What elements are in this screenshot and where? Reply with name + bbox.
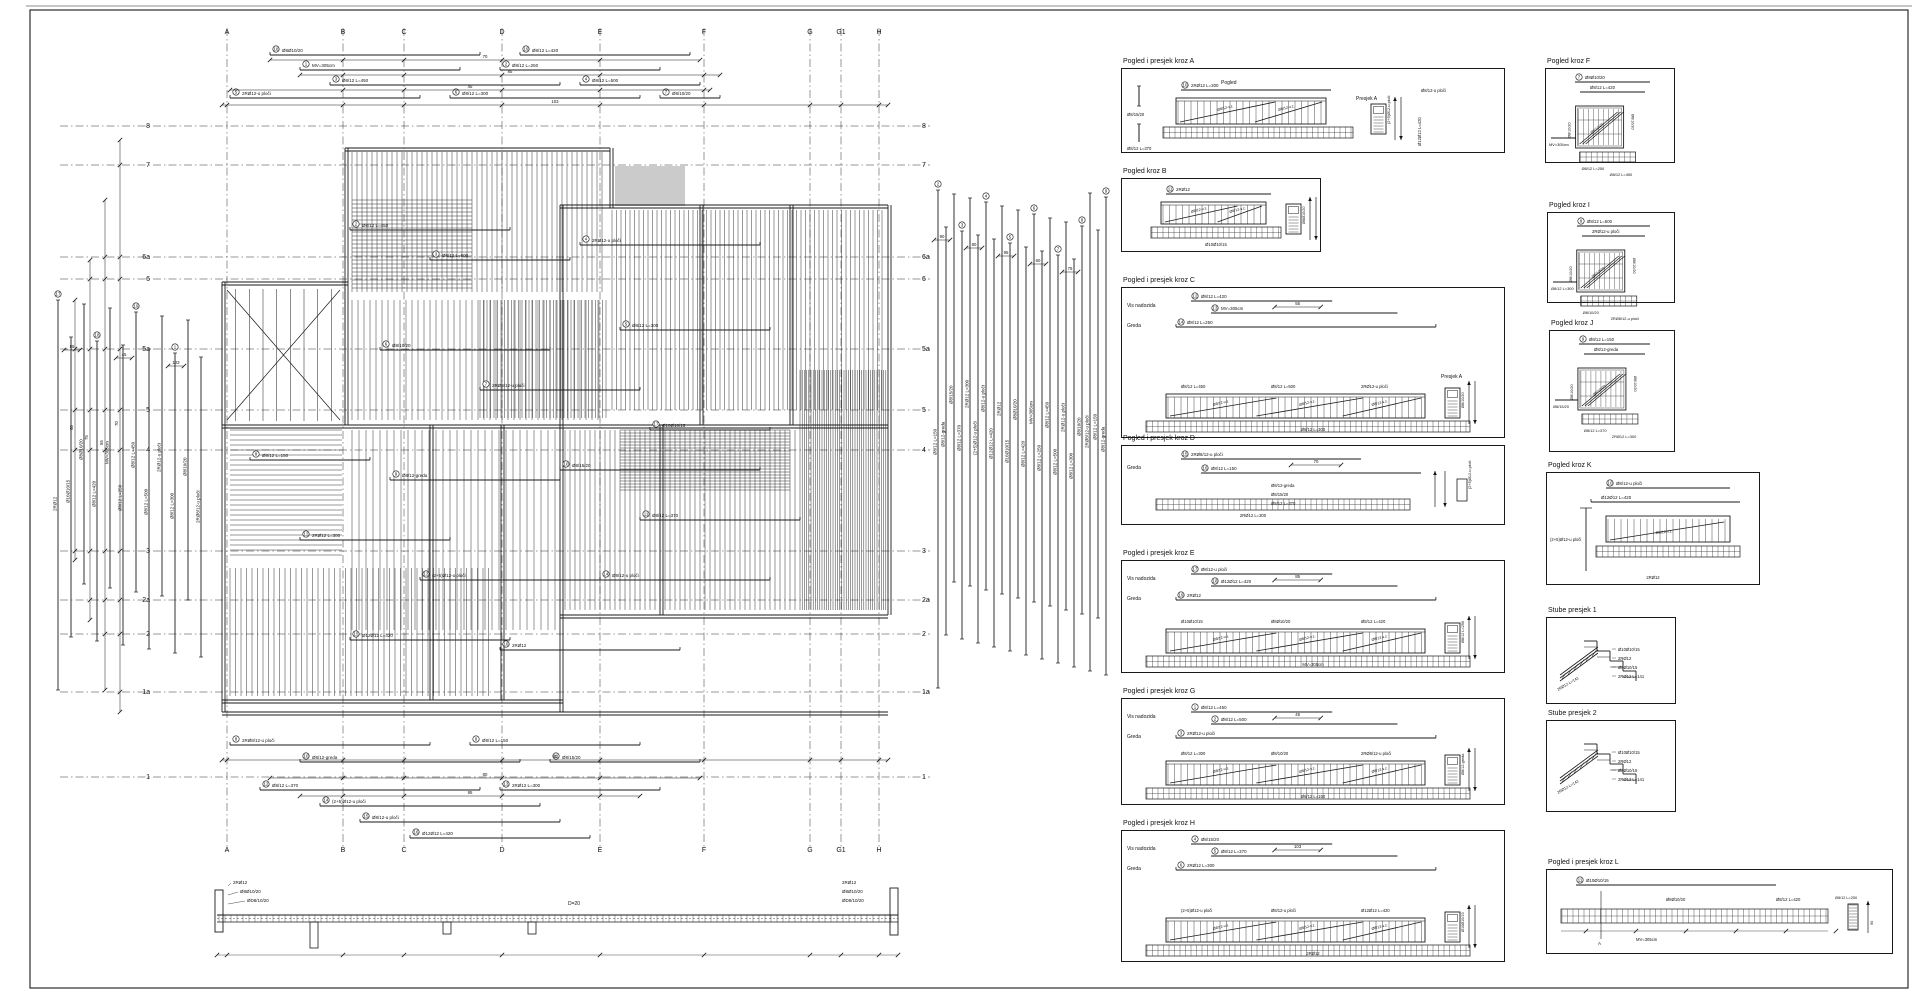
svg-text:Ø8/12 L=300: Ø8/12 L=300 bbox=[462, 91, 489, 96]
svg-text:Ø8/12 L=420: Ø8/12 L=420 bbox=[1021, 440, 1026, 467]
svg-text:10: 10 bbox=[304, 754, 309, 759]
svg-text:2RØ12: 2RØ12 bbox=[512, 643, 527, 648]
svg-text:5: 5 bbox=[146, 407, 150, 414]
svg-text:1a: 1a bbox=[922, 689, 930, 696]
svg-text:Ø8/10/20: Ø8/10/20 bbox=[672, 91, 691, 96]
detail-box-k[interactable]: Pogled kroz K bbox=[1546, 472, 1760, 585]
svg-text:6: 6 bbox=[146, 276, 150, 283]
dimension-chains: 70854510390809560755570 bbox=[69, 54, 890, 798]
svg-text:2: 2 bbox=[146, 631, 150, 638]
svg-text:Ø8/12 L=300: Ø8/12 L=300 bbox=[1069, 452, 1074, 479]
svg-text:Ø8/12 L=250: Ø8/12 L=250 bbox=[1582, 166, 1605, 171]
svg-text:2RØ12 L=300: 2RØ12 L=300 bbox=[512, 783, 541, 788]
svg-text:1: 1 bbox=[922, 774, 926, 781]
svg-text:Ø8/15/20: Ø8/15/20 bbox=[572, 463, 591, 468]
plan-grid: AABBCCDDEEFFGGG1G1HH88776a6a665a5a554433… bbox=[60, 28, 930, 854]
svg-text:2RØ8/12-u ploči: 2RØ8/12-u ploči bbox=[492, 383, 525, 388]
svg-text:6a: 6a bbox=[142, 254, 150, 261]
detail-box-stair-2-title: Stube presjek 2 bbox=[1548, 710, 1597, 717]
svg-text:2RØ12-u ploči: 2RØ12-u ploči bbox=[242, 91, 271, 96]
svg-text:2RØ8/12-u ploči: 2RØ8/12-u ploči bbox=[242, 738, 275, 743]
svg-text:Ø8/10/20: Ø8/10/20 bbox=[392, 343, 411, 348]
svg-text:Ø8/12-u ploči: Ø8/12-u ploči bbox=[981, 385, 986, 412]
svg-text:3: 3 bbox=[922, 548, 926, 555]
detail-box-h[interactable]: Pogled i presjek kroz H bbox=[1121, 830, 1505, 962]
svg-text:Ø8/12 L=150: Ø8/12 L=150 bbox=[482, 738, 509, 743]
svg-text:8: 8 bbox=[146, 123, 150, 130]
svg-text:G: G bbox=[807, 29, 812, 36]
svg-text:Ø10Ø10/15: Ø10Ø10/15 bbox=[1005, 439, 1010, 463]
svg-text:Ø8/12 L=450: Ø8/12 L=450 bbox=[131, 441, 136, 468]
detail-box-d[interactable]: Pogled i presjek kroz D bbox=[1121, 445, 1505, 525]
detail-box-stair-1-title: Stube presjek 1 bbox=[1548, 607, 1597, 614]
svg-text:16: 16 bbox=[414, 830, 419, 835]
svg-text:Ø8/10/20: Ø8/10/20 bbox=[183, 457, 188, 476]
svg-text:(2+5)Ø12-u ploči: (2+5)Ø12-u ploči bbox=[332, 799, 366, 804]
svg-text:B: B bbox=[341, 29, 346, 36]
svg-text:2RØ12 L=300: 2RØ12 L=300 bbox=[965, 379, 970, 408]
svg-text:95: 95 bbox=[468, 790, 473, 795]
svg-text:5: 5 bbox=[922, 407, 926, 414]
svg-text:6: 6 bbox=[922, 276, 926, 283]
svg-text:(2+5)Ø12-u ploči: (2+5)Ø12-u ploči bbox=[432, 573, 466, 578]
svg-text:19: 19 bbox=[524, 47, 529, 52]
detail-box-g-title: Pogled i presjek kroz G bbox=[1123, 688, 1195, 695]
detail-box-i-title: Pogled kroz I bbox=[1549, 202, 1590, 209]
svg-text:Ø8/12 L=450: Ø8/12 L=450 bbox=[1045, 401, 1050, 428]
svg-text:Ø12Ø12 L=420: Ø12Ø12 L=420 bbox=[989, 428, 994, 459]
svg-text:Ø8/12 L=420: Ø8/12 L=420 bbox=[92, 480, 97, 507]
svg-text:70: 70 bbox=[114, 421, 119, 426]
svg-text:D=20: D=20 bbox=[568, 901, 580, 907]
svg-text:Ø8/12 L=300: Ø8/12 L=300 bbox=[170, 492, 175, 519]
svg-text:85: 85 bbox=[70, 344, 75, 349]
svg-text:7: 7 bbox=[922, 162, 926, 169]
svg-text:8: 8 bbox=[922, 123, 926, 130]
svg-text:C: C bbox=[401, 847, 406, 854]
svg-text:ØD8/10/20: ØD8/10/20 bbox=[247, 898, 269, 903]
svg-text:Ø8/12 L=370: Ø8/12 L=370 bbox=[652, 513, 679, 518]
svg-text:60: 60 bbox=[1036, 258, 1041, 263]
svg-text:Ø8/12 L=150: Ø8/12 L=150 bbox=[1093, 413, 1098, 440]
svg-text:90: 90 bbox=[553, 754, 558, 759]
svg-text:2RØ8/12-u ploči: 2RØ8/12-u ploči bbox=[1085, 415, 1090, 448]
svg-text:80: 80 bbox=[483, 772, 488, 777]
svg-text:(2+5)Ø12-u ploči: (2+5)Ø12-u ploči bbox=[973, 421, 978, 455]
svg-text:Ø8/12 L=500: Ø8/12 L=500 bbox=[1053, 448, 1058, 475]
svg-text:B: B bbox=[341, 847, 346, 854]
detail-box-l-title: Pogled i presjek kroz L bbox=[1548, 859, 1619, 866]
svg-text:Ø8Ø10/20: Ø8Ø10/20 bbox=[79, 439, 84, 460]
detail-box-a-title: Pogled i presjek kroz A bbox=[1123, 58, 1194, 65]
detail-box-b[interactable]: Pogled kroz B bbox=[1121, 178, 1321, 252]
svg-text:17: 17 bbox=[654, 422, 659, 427]
svg-text:D: D bbox=[499, 29, 504, 36]
svg-text:4: 4 bbox=[146, 447, 150, 454]
svg-text:A: A bbox=[225, 847, 230, 854]
detail-box-h-title: Pogled i presjek kroz H bbox=[1123, 820, 1195, 827]
svg-text:6a: 6a bbox=[922, 254, 930, 261]
svg-text:Ø8/12 L=500: Ø8/12 L=500 bbox=[144, 488, 149, 515]
drawing-sheet: AABBCCDDEEFFGGG1G1HH88776a6a665a5a554433… bbox=[0, 0, 1920, 999]
svg-text:45: 45 bbox=[122, 352, 127, 357]
svg-text:Ø8/12 L=250: Ø8/12 L=250 bbox=[118, 484, 123, 511]
svg-text:95: 95 bbox=[1004, 250, 1009, 255]
svg-text:75: 75 bbox=[84, 435, 89, 440]
svg-text:2a: 2a bbox=[922, 597, 930, 604]
svg-text:MV=305cm: MV=305cm bbox=[105, 441, 110, 464]
detail-box-e-title: Pogled i presjek kroz E bbox=[1123, 550, 1195, 557]
svg-text:2RØ8/12-u ploči: 2RØ8/12-u ploči bbox=[196, 490, 201, 523]
svg-text:18: 18 bbox=[95, 333, 100, 338]
svg-text:12: 12 bbox=[304, 532, 309, 537]
svg-text:A: A bbox=[225, 29, 230, 36]
plan-walls bbox=[222, 148, 891, 715]
svg-text:13: 13 bbox=[504, 782, 509, 787]
svg-text:Ø8/12 L=500: Ø8/12 L=500 bbox=[442, 253, 469, 258]
svg-text:F: F bbox=[702, 29, 706, 36]
svg-text:3: 3 bbox=[146, 548, 150, 555]
svg-text:10: 10 bbox=[564, 462, 569, 467]
svg-text:2RØ8/12-u ploči: 2RØ8/12-u ploči bbox=[1611, 316, 1639, 321]
svg-text:Ø8/12 L=250: Ø8/12 L=250 bbox=[512, 63, 539, 68]
svg-text:75: 75 bbox=[1068, 266, 1073, 271]
svg-text:4: 4 bbox=[922, 447, 926, 454]
detail-box-f-title: Pogled kroz F bbox=[1547, 58, 1590, 65]
bottom-section: D=202RØ12Ø8Ø10/20ØD8/10/202RØ12Ø8Ø10/20Ø… bbox=[215, 880, 900, 957]
svg-text:C: C bbox=[401, 29, 406, 36]
svg-text:H: H bbox=[876, 29, 881, 36]
svg-text:90: 90 bbox=[940, 234, 945, 239]
svg-text:15: 15 bbox=[354, 632, 359, 637]
svg-text:Ø8/12 L=370: Ø8/12 L=370 bbox=[957, 424, 962, 451]
detail-box-stair-1[interactable]: Stube presjek 1 bbox=[1546, 617, 1676, 704]
svg-text:85: 85 bbox=[508, 69, 513, 74]
svg-text:17: 17 bbox=[56, 292, 61, 297]
svg-text:Ø10Ø10/15: Ø10Ø10/15 bbox=[66, 479, 71, 503]
detail-box-k-title: Pogled kroz K bbox=[1548, 462, 1592, 469]
svg-text:E: E bbox=[598, 29, 603, 36]
svg-text:2RØ12-u ploči: 2RØ12-u ploči bbox=[1061, 403, 1066, 432]
svg-text:H: H bbox=[876, 847, 881, 854]
svg-text:11: 11 bbox=[644, 512, 649, 517]
detail-box-j-title: Pogled kroz J bbox=[1551, 320, 1593, 327]
svg-text:2RØ12-u ploči: 2RØ12-u ploči bbox=[157, 443, 162, 472]
svg-text:Ø8/12-u ploči: Ø8/12-u ploči bbox=[372, 815, 399, 820]
svg-text:19: 19 bbox=[134, 304, 139, 309]
svg-text:103: 103 bbox=[172, 360, 180, 365]
svg-text:MV=305cm: MV=305cm bbox=[312, 63, 335, 68]
svg-text:F: F bbox=[702, 847, 706, 854]
svg-text:Ø8/12-greda: Ø8/12-greda bbox=[941, 421, 946, 447]
svg-text:103: 103 bbox=[551, 99, 559, 104]
svg-text:7: 7 bbox=[146, 162, 150, 169]
detail-box-d-title: Pogled i presjek kroz D bbox=[1123, 435, 1195, 442]
svg-text:1: 1 bbox=[146, 774, 150, 781]
svg-text:2: 2 bbox=[922, 631, 926, 638]
detail-box-f[interactable]: Pogled kroz F bbox=[1545, 68, 1675, 163]
detail-box-stair-2[interactable]: Stube presjek 2 bbox=[1546, 720, 1676, 812]
svg-text:Ø8/12-greda: Ø8/12-greda bbox=[1101, 426, 1106, 452]
svg-text:Ø8Ø10/20: Ø8Ø10/20 bbox=[842, 889, 863, 894]
svg-text:12: 12 bbox=[264, 782, 269, 787]
svg-text:Ø8Ø10/20: Ø8Ø10/20 bbox=[1013, 399, 1018, 420]
svg-text:Ø8/12 L=450: Ø8/12 L=450 bbox=[362, 223, 389, 228]
svg-text:Ø12Ø12 L=420: Ø12Ø12 L=420 bbox=[422, 831, 453, 836]
svg-text:2RØ12-u ploči: 2RØ12-u ploči bbox=[592, 238, 621, 243]
svg-text:2RØ12: 2RØ12 bbox=[233, 880, 248, 885]
svg-text:Ø8/12 L=300: Ø8/12 L=300 bbox=[632, 323, 659, 328]
svg-text:Ø8Ø10/20: Ø8Ø10/20 bbox=[240, 889, 261, 894]
svg-text:Ø8/12 L=450: Ø8/12 L=450 bbox=[342, 78, 369, 83]
svg-text:Ø8/10/20: Ø8/10/20 bbox=[1583, 310, 1600, 315]
svg-text:2RØ12: 2RØ12 bbox=[842, 880, 857, 885]
svg-text:G1: G1 bbox=[836, 847, 845, 854]
svg-text:14: 14 bbox=[324, 798, 329, 803]
svg-text:D: D bbox=[499, 847, 504, 854]
svg-text:15: 15 bbox=[364, 814, 369, 819]
svg-text:2RØ12 L=300: 2RØ12 L=300 bbox=[312, 533, 341, 538]
detail-box-i[interactable]: Pogled kroz I bbox=[1547, 212, 1675, 303]
svg-text:Ø8/15/20: Ø8/15/20 bbox=[949, 385, 954, 404]
svg-text:1a: 1a bbox=[142, 689, 150, 696]
detail-box-l[interactable]: Pogled i presjek kroz L bbox=[1546, 869, 1893, 954]
svg-text:Ø8/12 L=500: Ø8/12 L=500 bbox=[592, 78, 619, 83]
svg-text:16: 16 bbox=[504, 642, 509, 647]
svg-text:Ø8/12 L=370: Ø8/12 L=370 bbox=[272, 783, 299, 788]
svg-text:Ø10Ø10/15: Ø10Ø10/15 bbox=[662, 423, 686, 428]
svg-text:MV=305cm: MV=305cm bbox=[1029, 401, 1034, 424]
svg-text:80: 80 bbox=[972, 242, 977, 247]
detail-box-c[interactable]: Pogled i presjek kroz C bbox=[1121, 287, 1505, 438]
svg-text:14: 14 bbox=[604, 572, 609, 577]
svg-text:E: E bbox=[598, 847, 603, 854]
detail-box-g[interactable]: Pogled i presjek kroz G bbox=[1121, 698, 1505, 805]
svg-text:2RØ12: 2RØ12 bbox=[997, 401, 1002, 416]
plan-hatching bbox=[230, 152, 886, 696]
svg-text:70: 70 bbox=[483, 54, 488, 59]
svg-text:Ø8/12 L=150: Ø8/12 L=150 bbox=[933, 428, 938, 455]
svg-text:45: 45 bbox=[468, 84, 473, 89]
svg-text:55: 55 bbox=[99, 440, 104, 445]
svg-text:Ø8/15/20: Ø8/15/20 bbox=[562, 755, 581, 760]
detail-box-a[interactable]: Pogled i presjek kroz A bbox=[1121, 68, 1505, 153]
bar-schedule-right: Ø8/12 L=1502Ø8/12-gredaØ8/15/2090Ø8/12 L… bbox=[932, 181, 1109, 688]
svg-text:5a: 5a bbox=[922, 346, 930, 353]
svg-text:18: 18 bbox=[274, 47, 279, 52]
svg-text:Ø8/10/20: Ø8/10/20 bbox=[1077, 417, 1082, 436]
detail-box-e[interactable]: Pogled i presjek kroz E bbox=[1121, 560, 1505, 673]
svg-text:G: G bbox=[807, 847, 812, 854]
svg-text:Ø8/12 L=250: Ø8/12 L=250 bbox=[1037, 444, 1042, 471]
svg-text:Ø12Ø12 L=420: Ø12Ø12 L=420 bbox=[362, 633, 393, 638]
svg-text:Ø8/12 L=450: Ø8/12 L=450 bbox=[1610, 172, 1633, 177]
svg-text:2RØ12: 2RØ12 bbox=[53, 496, 58, 511]
svg-text:Ø8/12-greda: Ø8/12-greda bbox=[312, 755, 338, 760]
svg-text:Ø8/12 L=420: Ø8/12 L=420 bbox=[532, 48, 559, 53]
svg-text:G1: G1 bbox=[836, 29, 845, 36]
detail-box-b-title: Pogled kroz B bbox=[1123, 168, 1167, 175]
svg-text:13: 13 bbox=[424, 572, 429, 577]
svg-text:ØD8/10/20: ØD8/10/20 bbox=[842, 898, 864, 903]
svg-text:Ø8/12-greda: Ø8/12-greda bbox=[402, 473, 428, 478]
svg-text:Ø8Ø10/20: Ø8Ø10/20 bbox=[282, 48, 303, 53]
detail-box-j[interactable]: Pogled kroz J bbox=[1549, 330, 1675, 452]
svg-text:Ø8/12 L=150: Ø8/12 L=150 bbox=[262, 453, 289, 458]
svg-text:60: 60 bbox=[69, 425, 74, 430]
detail-box-c-title: Pogled i presjek kroz C bbox=[1123, 277, 1195, 284]
svg-text:Ø8/12-u ploči: Ø8/12-u ploči bbox=[612, 573, 639, 578]
